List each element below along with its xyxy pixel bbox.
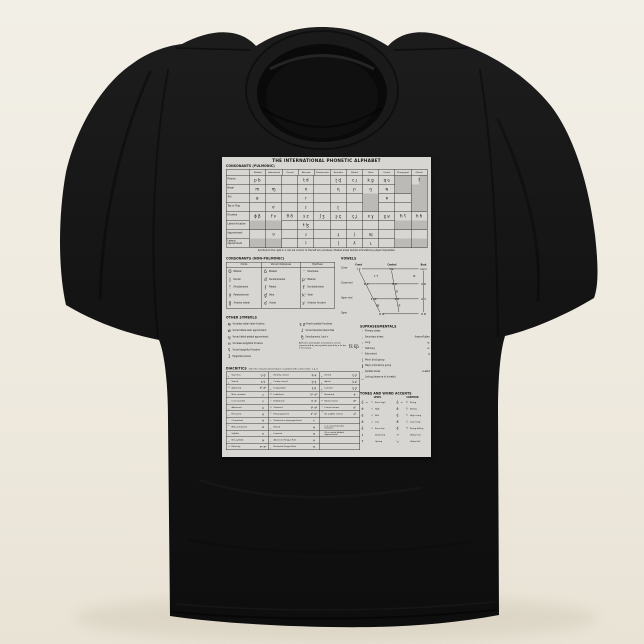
ipa-example: d̚ [350, 412, 360, 416]
ipa-symbol: ǂ [227, 293, 234, 298]
pulmonic-rows: Plosive p bt dʈ ɖc ɟk ɡq ɢʔ Nasal mɱnɳɲŋ… [227, 176, 428, 248]
ejective-item: sʼ Alveolar fricative [301, 299, 335, 307]
ipa-symbol: e᷄ [395, 413, 400, 417]
chart-title: THE INTERNATIONAL PHONETIC ALPHABET [222, 159, 431, 164]
nonpulmonic-table: Clicks ʘ Bilabial ǀ Dental ǃ (Pos [226, 262, 335, 308]
ipa-label: Centralized [232, 419, 259, 421]
ipa-label: Bilabial [234, 271, 242, 274]
ipa-example: e̙ [309, 445, 319, 449]
ipa-symbol: ʘ [227, 270, 234, 275]
ipa-label: More rounded [232, 393, 259, 395]
ipa-symbol: ȅ [360, 426, 365, 430]
ipa-label: Linking (absence of a break) [365, 376, 396, 379]
ipa-example: e̠ [258, 412, 268, 416]
tone-item: ↑ Upstep [360, 438, 395, 445]
pulmonic-cell [379, 239, 395, 249]
ipa-label: Dental [325, 374, 350, 376]
svg-text:ɤ o: ɤ o [421, 282, 426, 286]
ipa-label: Voiced [232, 380, 259, 382]
click-item: ǀ Dental [227, 276, 262, 284]
ipa-label: Nasal release [325, 400, 350, 402]
ipa-label: Dental [234, 278, 241, 281]
ipa-example: b̰ a̰ [309, 380, 319, 384]
ipa-symbol: ê [395, 407, 400, 411]
vowels-section: VOWELS Close Close-mid Open-mid Open Fro… [341, 257, 431, 321]
ipa-example: tʰ dʰ [258, 386, 268, 390]
pulmonic-row: Nasal mɱnɳɲŋɴ [227, 185, 428, 194]
other-symbols-right: ɕ ʑ Alveolo-palatal fricatives ɺ Voiced … [299, 321, 360, 360]
ipa-example: e̯ [258, 438, 268, 442]
axis-front: Front [355, 264, 361, 267]
affricates-note: Affricates and double articulations can … [299, 342, 347, 349]
ipa-label: Mid [375, 414, 379, 417]
ipa-label: No audible release [325, 413, 350, 415]
ipa-label: Lowered [274, 432, 310, 434]
ejective-item: tʼ Dental/alveolar [301, 284, 335, 292]
implosive-item: ʛ Uvular [262, 299, 300, 307]
other-symbols-section: OTHER SYMBOLS ʍ Voiceless labial-velar f… [226, 316, 360, 360]
ipa-symbol: ē [360, 413, 365, 417]
svg-text:ɘ ɵ: ɘ ɵ [392, 282, 397, 286]
other-symbol-item: ʡ Epiglottal plosive [226, 354, 299, 361]
axis-central: Central [387, 264, 396, 267]
vowels-heading: VOWELS [341, 257, 431, 261]
pulmonic-cell: ʎ [347, 239, 363, 249]
ipa-symbol: ʼ [301, 270, 308, 275]
ipa-label: Falling [410, 408, 417, 411]
clicks-list: ʘ Bilabial ǀ Dental ǃ (Post)alveolar ǂ P… [227, 268, 262, 307]
ipa-example: n̥ d̥ [258, 373, 268, 377]
ipa-label: Voiced alveolar lateral flap [306, 330, 335, 333]
diacritics-heading: DIACRITICSDiacritics may be placed above… [226, 367, 360, 371]
ipa-example: ɔ̜ [258, 399, 268, 403]
nonpulmonic-section: CONSONANTS (NON-PULMONIC) Clicks ʘ Bilab… [226, 257, 335, 308]
tones-contour-list: ě or ˩˥ Rising ê ˥˩ Falling e᷄ ˧ [395, 399, 430, 445]
tones-heading: TONES AND WORD ACCENTS [360, 392, 430, 396]
ipa-label: Extra low [375, 427, 385, 430]
ipa-symbol: ʄ [262, 285, 269, 290]
pulmonic-cell [395, 239, 411, 249]
svg-text:ɪ ʏ: ɪ ʏ [374, 274, 378, 278]
ipa-label: Voiceless epiglottal fricative [233, 343, 263, 346]
ipa-symbol: ǃ [227, 285, 234, 290]
ipa-label: Low [375, 421, 379, 424]
ipa-label: Lateral release [325, 406, 350, 408]
ipa-label: Rising-falling [410, 427, 423, 430]
pulmonic-cell [282, 239, 298, 249]
ipa-symbol: pʼ [301, 277, 308, 282]
diacritic-cell: ̙ Retracted Tongue Root e̙ [269, 444, 320, 451]
ipa-label: Alveolar lateral [234, 302, 250, 305]
pulmonic-footnote: Symbols to the right in a cell are voice… [226, 250, 427, 253]
ipa-label: High rising [410, 414, 421, 417]
ipa-example: ˌfoʊnəˈtɪʃən [414, 336, 430, 339]
ipa-label: Alveolar fricative [308, 302, 326, 305]
ipa-example: b̤ a̤ [309, 373, 319, 377]
implosive-item: ɗ Dental/alveolar [262, 276, 300, 284]
vowel-row-label: Close-mid [341, 282, 352, 285]
pulmonic-row-label: Fricative [227, 212, 250, 221]
svg-text:ʌ ɔ: ʌ ɔ [421, 297, 426, 301]
implosive-item: ʄ Palatal [262, 284, 300, 292]
ipa-example: e̞ [309, 432, 319, 436]
ipa-label: Velar [308, 294, 313, 297]
pulmonic-table: BilabialLabiodentalDentalAlveolarPostalv… [226, 169, 428, 248]
pulmonic-cell: ʟ [363, 239, 379, 249]
ipa-symbol: ↑ [360, 439, 365, 443]
pulmonic-row: Plosive p bt dʈ ɖc ɟk ɡq ɢʔ [227, 176, 428, 185]
ipa-label: Palatal [269, 286, 276, 289]
vowel-row-label: Close [341, 267, 347, 270]
ipa-label: Dental/alveolar [269, 278, 285, 281]
pulmonic-row-label: Approximant [227, 230, 250, 239]
ipa-label: Velar [269, 294, 274, 297]
ipa-label: Nasalized [325, 393, 350, 395]
ejectives-column: Ejectives ʼ Examples: pʼ Bilabial tʼ [301, 263, 335, 308]
diacritics-section: DIACRITICSDiacritics may be placed above… [226, 367, 360, 450]
other-symbols-left: ʍ Voiceless labial-velar fricative w Voi… [226, 321, 299, 360]
ipa-label: Syllable break [365, 370, 380, 373]
click-item: ǁ Alveolar lateral [227, 299, 262, 307]
diacritic-cell [320, 444, 361, 451]
ipa-symbol: é [360, 407, 365, 411]
diacritics-title: DIACRITICS [226, 367, 247, 371]
ipa-example: tˠ dˠ [309, 406, 319, 410]
ipa-label: Uvular [269, 302, 276, 305]
ipa-example: t̺ d̺ [350, 380, 360, 384]
ipa-example: e̽ [258, 425, 268, 429]
ipa-example: ɫ [309, 419, 319, 423]
click-item: ʘ Bilabial [227, 268, 262, 276]
ipa-example: e̘ [309, 438, 319, 442]
ipa-label: Long [365, 342, 370, 345]
ipa-label: Retracted [232, 413, 259, 415]
ipa-label: Primary stress [365, 330, 380, 333]
pulmonic-cell: l [298, 239, 314, 249]
pulmonic-row-label: Lateral fricative [227, 221, 250, 230]
ipa-example: dˡ [350, 406, 360, 410]
svg-text:e ø: e ø [364, 282, 369, 286]
product-photo: THE INTERNATIONAL PHONETIC ALPHABET CONS… [0, 0, 644, 644]
ipa-label: Rhoticity [232, 445, 259, 447]
axis-back: Back [421, 264, 427, 267]
ipa-example: dⁿ [350, 399, 360, 403]
nonpulmonic-heading: CONSONANTS (NON-PULMONIC) [226, 257, 335, 261]
svg-text:i y: i y [357, 267, 361, 271]
ipa-example: s̬ t̬ [258, 380, 268, 384]
ipa-label: Non-syllabic [232, 439, 259, 441]
svg-text:ə: ə [396, 290, 398, 294]
ipa-label: Voiced epiglottal fricative [233, 349, 260, 352]
pulmonic-row: Lateral approximant lɭʎʟ [227, 239, 428, 248]
ipa-label: (β̞ = voiced bilabial approximant) [325, 431, 350, 435]
ipa-symbol: ɗ [262, 277, 269, 282]
pulmonic-cell [266, 239, 282, 249]
ipa-example: ə˞ a˞ [258, 445, 268, 449]
pulmonic-row: Approximant ʋɹɻjɰ [227, 230, 428, 239]
pulmonic-row-cells: lɭʎʟ [250, 239, 428, 248]
ipa-label: Epiglottal plosive [233, 356, 251, 359]
ipa-symbol: tʼ [301, 285, 308, 290]
ipa-label: (Post)alveolar [234, 286, 249, 289]
pulmonic-row-label: Tap or Flap [227, 203, 250, 212]
ipa-symbol: e᷅ [395, 420, 400, 424]
ipa-label: Advanced Tongue Root [274, 439, 310, 441]
ejective-item: kʼ Velar [301, 291, 335, 299]
ipa-example: t̼ d̼ [309, 386, 319, 390]
vowel-glyphs: i y ɨ ʉ ɯ u ɪ ʏ ʊ e ø ɘ ɵ ɤ o ə ɛ œ ɜ ɞ … [357, 267, 427, 316]
ipa-label: Palatoalveolar [234, 294, 249, 297]
ipa-symbol: ɓ [262, 270, 269, 275]
tie-bar-examples: t͡s k͡p [349, 345, 359, 350]
vowel-row-label: Open [341, 312, 347, 315]
ipa-label: Breathy voiced [274, 374, 310, 376]
ipa-label: Voiceless [232, 374, 259, 376]
ipa-symbol: è [360, 420, 365, 424]
ipa-label: Apical [325, 380, 350, 382]
ipa-label: Low rising [410, 421, 420, 424]
ipa-example: tʷ dʷ [309, 393, 319, 397]
ipa-label: Creaky voiced [274, 380, 310, 382]
other-symbols-right-list: ɕ ʑ Alveolo-palatal fricatives ɺ Voiced … [299, 321, 360, 341]
ipa-label: Velarized [274, 406, 310, 408]
ipa-example: eː [427, 341, 430, 344]
pulmonic-row-label: Plosive [227, 176, 250, 185]
implosives-column: Voiced implosives ɓ Bilabial ɗ Dental/al… [262, 263, 301, 308]
ipa-label: Global fall [410, 440, 420, 443]
ipa-label: Half-long [365, 347, 375, 350]
svg-text:ɜ ɞ: ɜ ɞ [395, 297, 400, 301]
suprasegmentals-section: SUPRASEGMENTALS ˈ Primary stress ˌ Secon… [360, 325, 430, 380]
ipa-example: ĕ [428, 353, 430, 356]
other-symbols-heading: OTHER SYMBOLS [226, 316, 360, 320]
ipa-symbol: ↘ [395, 439, 400, 443]
diacritics-table: ̥ Voiceless n̥ d̥ ̤ Breathy voiced b̤ a̤… [226, 372, 360, 451]
ipa-example: n̩ [258, 432, 268, 436]
ipa-label: Downstep [375, 434, 385, 437]
pulmonic-row-cells: ʋɹɻjɰ [250, 230, 428, 239]
ipa-label: Major (intonation) group [365, 365, 391, 368]
ipa-label: Velarized or pharyngealized [274, 419, 310, 421]
ipa-symbol: sʼ [301, 301, 308, 306]
ipa-label: Labialized [274, 393, 310, 395]
ipa-example: t̪ d̪ [350, 373, 360, 377]
ipa-label: Dental/alveolar [308, 286, 324, 289]
ipa-label: Syllabic [232, 432, 259, 434]
ipa-example: tˤ dˤ [309, 412, 319, 416]
svg-text:ɨ ʉ: ɨ ʉ [390, 267, 394, 271]
ipa-label: Linguolabial [274, 387, 310, 389]
ipa-symbol: ǁ [227, 301, 234, 306]
pulmonic-row: Trill ʙrʀ [227, 194, 428, 203]
pulmonic-row-cells: ɸ βf vθ ðs zʃ ʒʂ ʐç ʝx ɣχ ʁħ ʕh ɦ [250, 212, 428, 221]
pulmonic-row-label: Trill [227, 194, 250, 203]
ipa-example: u̟ [258, 406, 268, 410]
other-symbol-item: ɧ Simultaneous ʃ and x [299, 334, 360, 341]
ipa-label: Less rounded [232, 400, 259, 402]
vowel-row-label: Open-mid [341, 297, 352, 300]
ipa-symbol: ↓ [360, 433, 365, 437]
pulmonic-row-cells: mɱnɳɲŋɴ [250, 185, 428, 194]
ipa-example: eˑ [427, 347, 430, 350]
ipa-symbol: ʛ [262, 301, 269, 306]
pulmonic-row: Lateral fricative ɬ ɮ [227, 221, 428, 230]
ipa-example: ɹi.ækt [422, 370, 430, 373]
ipa-symbol: ɠ [262, 293, 269, 298]
ipa-label: Pharyngealized [274, 413, 310, 415]
ipa-label: Examples: [308, 271, 319, 274]
ipa-label: Voiced labial-velar approximant [233, 330, 267, 333]
diacritics-row: ˞ Rhoticity ə˞ a˞ ̙ Retracted Tongue Roo… [227, 444, 361, 451]
collar [246, 31, 398, 149]
ipa-example: ɔ̹ [258, 393, 268, 397]
pulmonic-row-label: Lateral approximant [227, 239, 250, 248]
ipa-chart: THE INTERNATIONAL PHONETIC ALPHABET CONS… [222, 157, 431, 457]
ipa-label: Secondary stress [365, 336, 383, 339]
ipa-label: (ɹ̝ = voiced alveolar fricative) [325, 425, 350, 429]
ipa-label: Mid-centralized [232, 426, 259, 428]
implosive-item: ɠ Velar [262, 291, 300, 299]
tones-section: TONES AND WORD ACCENTS LEVEL CONTOUR e̋ … [360, 392, 430, 445]
ipa-label: Bilabial [308, 278, 316, 281]
ipa-label: Aspirated [232, 387, 259, 389]
ipa-label: Upstep [375, 440, 382, 443]
ipa-label: Palatalized [274, 400, 310, 402]
svg-text:æ: æ [376, 304, 379, 308]
ipa-label: Advanced [232, 406, 259, 408]
svg-text:ɛ œ: ɛ œ [371, 297, 378, 301]
diacritics-note: Diacritics may be placed above a symbol … [249, 368, 318, 371]
pulmonic-row: Tap or Flap ⱱɾɽ [227, 203, 428, 212]
ipa-label: Bilabial [269, 271, 277, 274]
ipa-label: Raised [274, 426, 310, 428]
ejective-item: ʼ Examples: [301, 268, 335, 276]
ipa-label: Laminal [325, 387, 350, 389]
ipa-label: Retracted Tongue Root [274, 445, 310, 447]
pulmonic-cell: ɭ [330, 239, 346, 249]
clicks-column: Clicks ʘ Bilabial ǀ Dental ǃ (Pos [227, 263, 263, 308]
click-item: ǃ (Post)alveolar [227, 284, 262, 292]
ipa-label: High [375, 408, 380, 411]
tone-item: ↘ Global fall [395, 438, 430, 445]
ipa-label: Extra high [375, 401, 386, 404]
ipa-example: t̻ d̻ [350, 386, 360, 390]
pulmonic-row-label: Nasal [227, 185, 250, 194]
ipa-symbol: ↗ [395, 433, 400, 437]
implosives-list: ɓ Bilabial ɗ Dental/alveolar ʄ Palatal ɠ… [262, 268, 300, 307]
svg-text:ɯ u: ɯ u [421, 267, 427, 271]
pulmonic-cell [250, 239, 266, 249]
suprasegmental-item: ‿ Linking (absence of a break) [360, 375, 430, 381]
vowel-trapezoid: Front Central Back i y ɨ ʉ [352, 262, 431, 319]
implosive-item: ɓ Bilabial [262, 268, 300, 276]
ipa-chart-print: THE INTERNATIONAL PHONETIC ALPHABET CONS… [222, 157, 431, 457]
ipa-label: Simultaneous ʃ and x [306, 336, 329, 339]
svg-text:ɑ ɒ: ɑ ɒ [421, 312, 426, 316]
ipa-symbol: kʼ [301, 293, 308, 298]
diacritic-cell: ˞ Rhoticity ə˞ a˞ [227, 444, 269, 451]
ipa-label: Alveolo-palatal fricatives [306, 323, 333, 326]
ejectives-list: ʼ Examples: pʼ Bilabial tʼ Dental/alveol… [301, 268, 335, 307]
ipa-example: ẽ [350, 393, 360, 397]
pulmonic-row-cells: p bt dʈ ɖc ɟk ɡq ɢʔ [250, 176, 428, 185]
svg-text:ɐ: ɐ [398, 304, 400, 308]
ipa-symbol: e᷈ [395, 426, 400, 430]
pulmonic-row-cells: ɬ ɮ [250, 221, 428, 230]
pulmonic-row: Fricative ɸ βf vθ ðs zʃ ʒʂ ʐç ʝx ɣχ ʁħ ʕ… [227, 212, 428, 221]
tones-level-list: e̋ or ˥ Extra high é ˦ High ē ˧ [360, 399, 395, 445]
ipa-label: Voiced labial-palatal approximant [233, 336, 269, 339]
pulmonic-cell [314, 239, 330, 249]
pulmonic-row-cells: ⱱɾɽ [250, 203, 428, 212]
ipa-label: Extra-short [365, 353, 377, 356]
ipa-symbol: ǀ [227, 277, 234, 282]
suprasegmentals-list: ˈ Primary stress ˌ Secondary stress ˌfoʊ… [360, 329, 430, 381]
ipa-example: ë [258, 419, 268, 423]
pulmonic-row-cells: ʙrʀ [250, 194, 428, 203]
ejective-item: pʼ Bilabial [301, 276, 335, 284]
ipa-label: Voiceless labial-velar fricative [233, 323, 265, 326]
svg-text:ʊ: ʊ [413, 274, 415, 278]
ipa-label: Rising [410, 401, 416, 404]
ipa-label: Minor (foot) group [365, 359, 385, 362]
svg-text:a ɶ: a ɶ [379, 312, 385, 316]
ipa-label: Global rise [410, 434, 421, 437]
ipa-example: e̝ [309, 425, 319, 429]
pulmonic-cell [411, 239, 427, 249]
ipa-example: tʲ dʲ [309, 399, 319, 403]
pulmonic-heading: CONSONANTS (PULMONIC) [226, 165, 275, 169]
click-item: ǂ Palatoalveolar [227, 291, 262, 299]
